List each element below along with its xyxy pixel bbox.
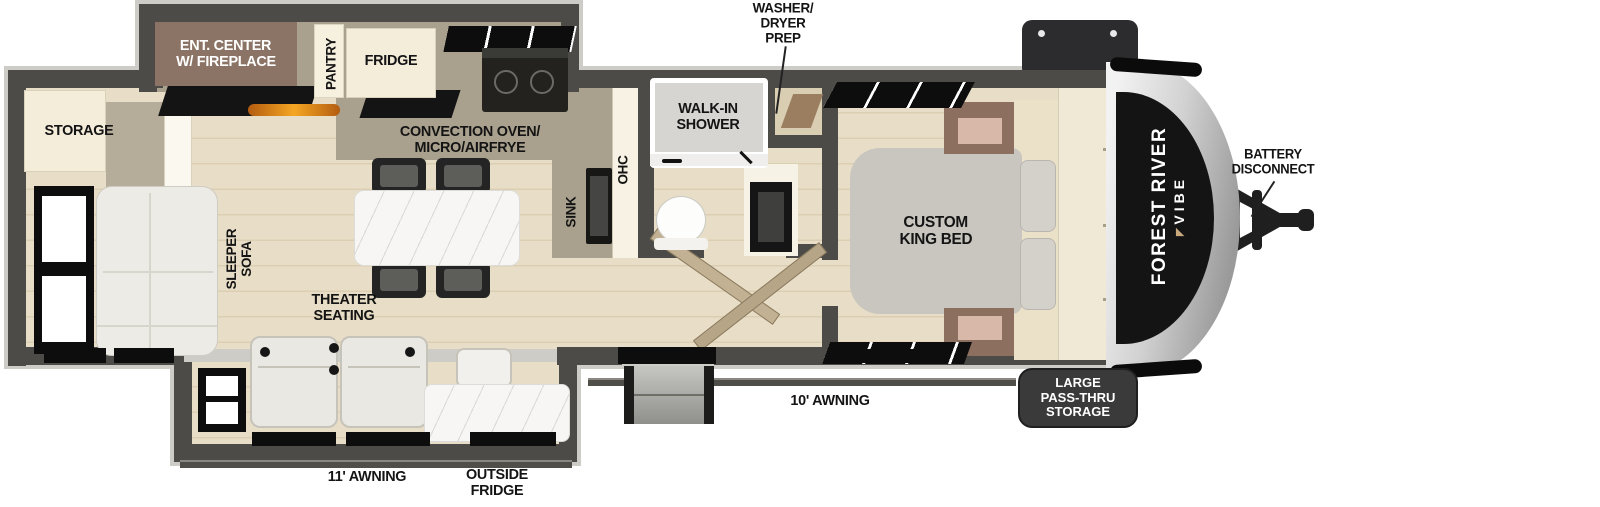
sleeper-sofa-label: SLEEPER SOFA [224,229,254,290]
step-rail [704,366,714,424]
pillow [1020,238,1056,310]
cupholder-icon [405,347,415,357]
window-pane [42,196,86,262]
nightstand-top [958,316,1002,340]
awning-main-label: 10' AWNING [790,393,869,409]
window-pane [206,376,238,396]
pass-thru-line3: STORAGE [1046,405,1110,420]
vanity-basin [758,192,784,242]
range-cooktop [482,48,568,112]
rear-bottom-window [114,348,174,363]
top-slide-wall-top [139,4,579,22]
wd-shelf [781,94,823,128]
kitchen-sink [586,168,612,244]
island-chair [436,262,490,298]
storage-label: STORAGE [45,123,114,139]
nightstand [944,102,1014,154]
island-chair [372,262,426,298]
nightstand-top [958,118,1002,144]
washer-prep-label: WASHER/ DRYER PREP [753,0,814,45]
bedroom-window-top [823,82,975,108]
floorplan-canvas: ENT. CENTER W/ FIREPLACE [0,0,1600,507]
sleeper-sofa [96,186,218,356]
sink-label: SINK [563,197,578,228]
convection-label: CONVECTION OVEN/ MICRO/AIRFRYE [400,124,540,156]
pass-thru-line1: LARGE [1055,376,1101,391]
washer-line2: DRYER [753,15,814,30]
slide-bottom-window [470,432,556,446]
cupholder-icon [260,347,270,357]
ent-center-label-line2: W/ FIREPLACE [176,54,276,70]
pantry-label: PANTRY [323,38,338,90]
convection-line2: MICRO/AIRFRYE [400,140,540,156]
pass-thru-line2: PASS-THRU [1041,391,1116,406]
entry-threshold [618,347,716,364]
vibe-chevron-icon: ◤ [1173,228,1186,236]
burner-icon [494,70,518,94]
ohc-label: OHC [615,155,630,184]
front-cap: FOREST RIVER ◤ VIBE [1106,62,1240,374]
battery-disconnect-label: BATTERY DISCONNECT [1232,147,1315,176]
outside-line1: OUTSIDE [466,467,528,483]
fireplace-glow [248,104,340,116]
entertainment-center: ENT. CENTER W/ FIREPLACE [155,22,297,86]
battery-line2: DISCONNECT [1232,162,1315,177]
king-bed-label-line2: KING BED [900,231,973,248]
sink-basin [590,176,608,236]
sleeper-line1: SLEEPER [224,229,239,290]
brand-name: FOREST RIVER [1149,127,1171,285]
cupholder-icon [329,343,339,353]
rivet-icon [1110,30,1117,37]
washer-line3: PREP [753,31,814,46]
theater-line2: SEATING [312,308,377,324]
kitchen-island [354,190,520,266]
wd-closet-interior [775,88,822,135]
theater-seating-label: THEATER SEATING [312,292,377,324]
walk-in-shower-label: WALK-IN SHOWER [676,101,739,133]
brand-sub: ◤ VIBE [1171,176,1187,236]
shower-line1: WALK-IN [676,101,739,117]
ent-center-label-line1: ENT. CENTER [180,38,271,54]
vibe-label: VIBE [1171,176,1187,225]
step-rail [624,366,634,424]
vanity-sink [750,182,792,252]
island-chair [372,158,426,194]
burner-icon [530,70,554,94]
slide-bottom-window [346,432,430,446]
sofa-seam [103,271,213,273]
range-trim [482,48,568,58]
shower-corner-mark [739,151,752,164]
entry-steps [624,366,714,424]
shower-line2: SHOWER [676,117,739,133]
step-edge [634,394,704,396]
window-pane [42,276,86,342]
island-chair [436,158,490,194]
king-bed-label-line1: CUSTOM [904,214,969,231]
rear-window [34,186,94,354]
outside-line2: FRIDGE [466,483,528,499]
washer-line1: WASHER/ [753,0,814,15]
toilet [656,196,706,244]
pass-thru-badge: LARGE PASS-THRU STORAGE [1018,368,1138,428]
battery-line1: BATTERY [1232,147,1315,162]
fridge-label: FRIDGE [365,53,418,69]
rear-cabinet-run [106,102,164,188]
king-bed: CUSTOM KING BED [850,148,1022,314]
slide-window [198,368,246,432]
slide-bottom-window [252,432,336,446]
hitch-knob [1298,209,1314,231]
rivet-icon [1038,30,1045,37]
cupholder-icon [329,365,339,375]
outside-fridge-label: OUTSIDE FRIDGE [466,467,528,499]
shower-ledge [650,152,768,166]
toilet-base [654,238,708,250]
awning-slide-label: 11' AWNING [328,469,406,485]
window-pane [206,402,238,424]
bedroom-exterior-window [828,349,938,363]
rear-bottom-window [44,348,106,363]
slide-stool [456,348,512,388]
convection-line1: CONVECTION OVEN/ [400,124,540,140]
brand-logo: FOREST RIVER ◤ VIBE [1136,106,1200,306]
wd-closet-wall-bottom [762,135,838,148]
theater-line1: THEATER [312,292,377,308]
sleeper-line2: SOFA [239,229,254,290]
shower-handle-icon [662,159,682,163]
pillow [1020,160,1056,232]
